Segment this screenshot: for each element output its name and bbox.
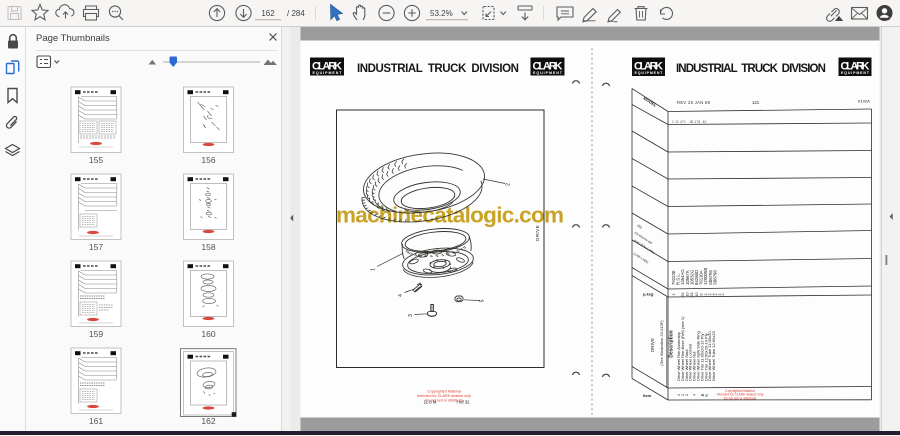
svg-text:156: 156 (201, 155, 215, 165)
svg-text:158: 158 (201, 242, 215, 252)
svg-text:8: 8 (699, 294, 703, 296)
svg-text:3: 3 (685, 394, 689, 396)
svg-text:Copyrighted Material: Copyrighted Material (427, 390, 461, 394)
svg-text:p.keg: p.keg (642, 292, 654, 297)
svg-text:53: 53 (681, 293, 685, 297)
svg-text:162: 162 (201, 416, 215, 426)
svg-text:4: 4 (398, 294, 404, 297)
svg-text:1-11 471 JB 176 40: 1-11 471 JB 176 40 (672, 120, 706, 124)
svg-text:Intended for CLARK dealers onl: Intended for CLARK dealers only (417, 394, 471, 398)
svg-text:Drive Wheel Tube 12:00x20: Drive Wheel Tube 12:00x20 (711, 330, 716, 381)
svg-text:121: 121 (752, 100, 760, 105)
svg-text:4 al: 4 al (702, 394, 708, 398)
svg-text:5: 5 (480, 299, 486, 302)
svg-text:155: 155 (89, 155, 103, 165)
svg-text:1: 1 (371, 268, 377, 271)
svg-text:S06798: S06798 (712, 270, 717, 285)
svg-text:157: 157 (89, 242, 103, 252)
svg-text:Description: Description (669, 330, 675, 358)
svg-text:159: 159 (89, 329, 103, 339)
svg-text:2: 2 (721, 294, 725, 296)
svg-text:INDUSTRIAL TRUCK DIVISION: INDUSTRIAL TRUCK DIVISION (357, 63, 520, 75)
svg-text:53: 53 (690, 293, 694, 297)
svg-text:(See Illustration 23-013F): (See Illustration 23-013F) (659, 320, 664, 366)
svg-text:K102A: K102A (858, 99, 870, 104)
svg-text:EQUIPMENT: EQUIPMENT (841, 71, 870, 75)
svg-text:Page Thumbnails: Page Thumbnails (36, 33, 110, 44)
svg-text:DRIVE: DRIVE (650, 338, 655, 352)
svg-text:/ 284: / 284 (287, 9, 305, 18)
svg-text:161: 161 (89, 416, 103, 426)
svg-text:Do not sell or distribute: Do not sell or distribute (724, 396, 757, 400)
svg-text:INDUSTRIAL TRUCK DIVISION: INDUSTRIAL TRUCK DIVISION (676, 63, 827, 75)
svg-text:REV 25 JAN 68: REV 25 JAN 68 (677, 100, 711, 105)
svg-text:EQUIPMENT: EQUIPMENT (635, 71, 664, 75)
svg-text:11-8 M: 11-8 M (424, 400, 437, 405)
svg-text:2: 2 (506, 183, 512, 186)
svg-text:3: 3 (408, 314, 414, 317)
svg-text:f ref 32: f ref 32 (456, 400, 470, 405)
svg-text:DRIVE: DRIVE (535, 225, 540, 241)
svg-text:Item: Item (643, 393, 652, 398)
svg-text:162: 162 (261, 9, 275, 18)
svg-text:10: 10 (695, 293, 699, 297)
svg-text:1: 1 (672, 294, 676, 296)
svg-text:EQUIPMENT: EQUIPMENT (533, 71, 563, 75)
svg-text:10: 10 (686, 293, 690, 297)
svg-text:EQUIPMENT: EQUIPMENT (313, 71, 343, 75)
svg-text:4: 4 (693, 394, 697, 396)
svg-text:53.2%: 53.2% (430, 9, 453, 18)
svg-text:160: 160 (201, 329, 215, 339)
